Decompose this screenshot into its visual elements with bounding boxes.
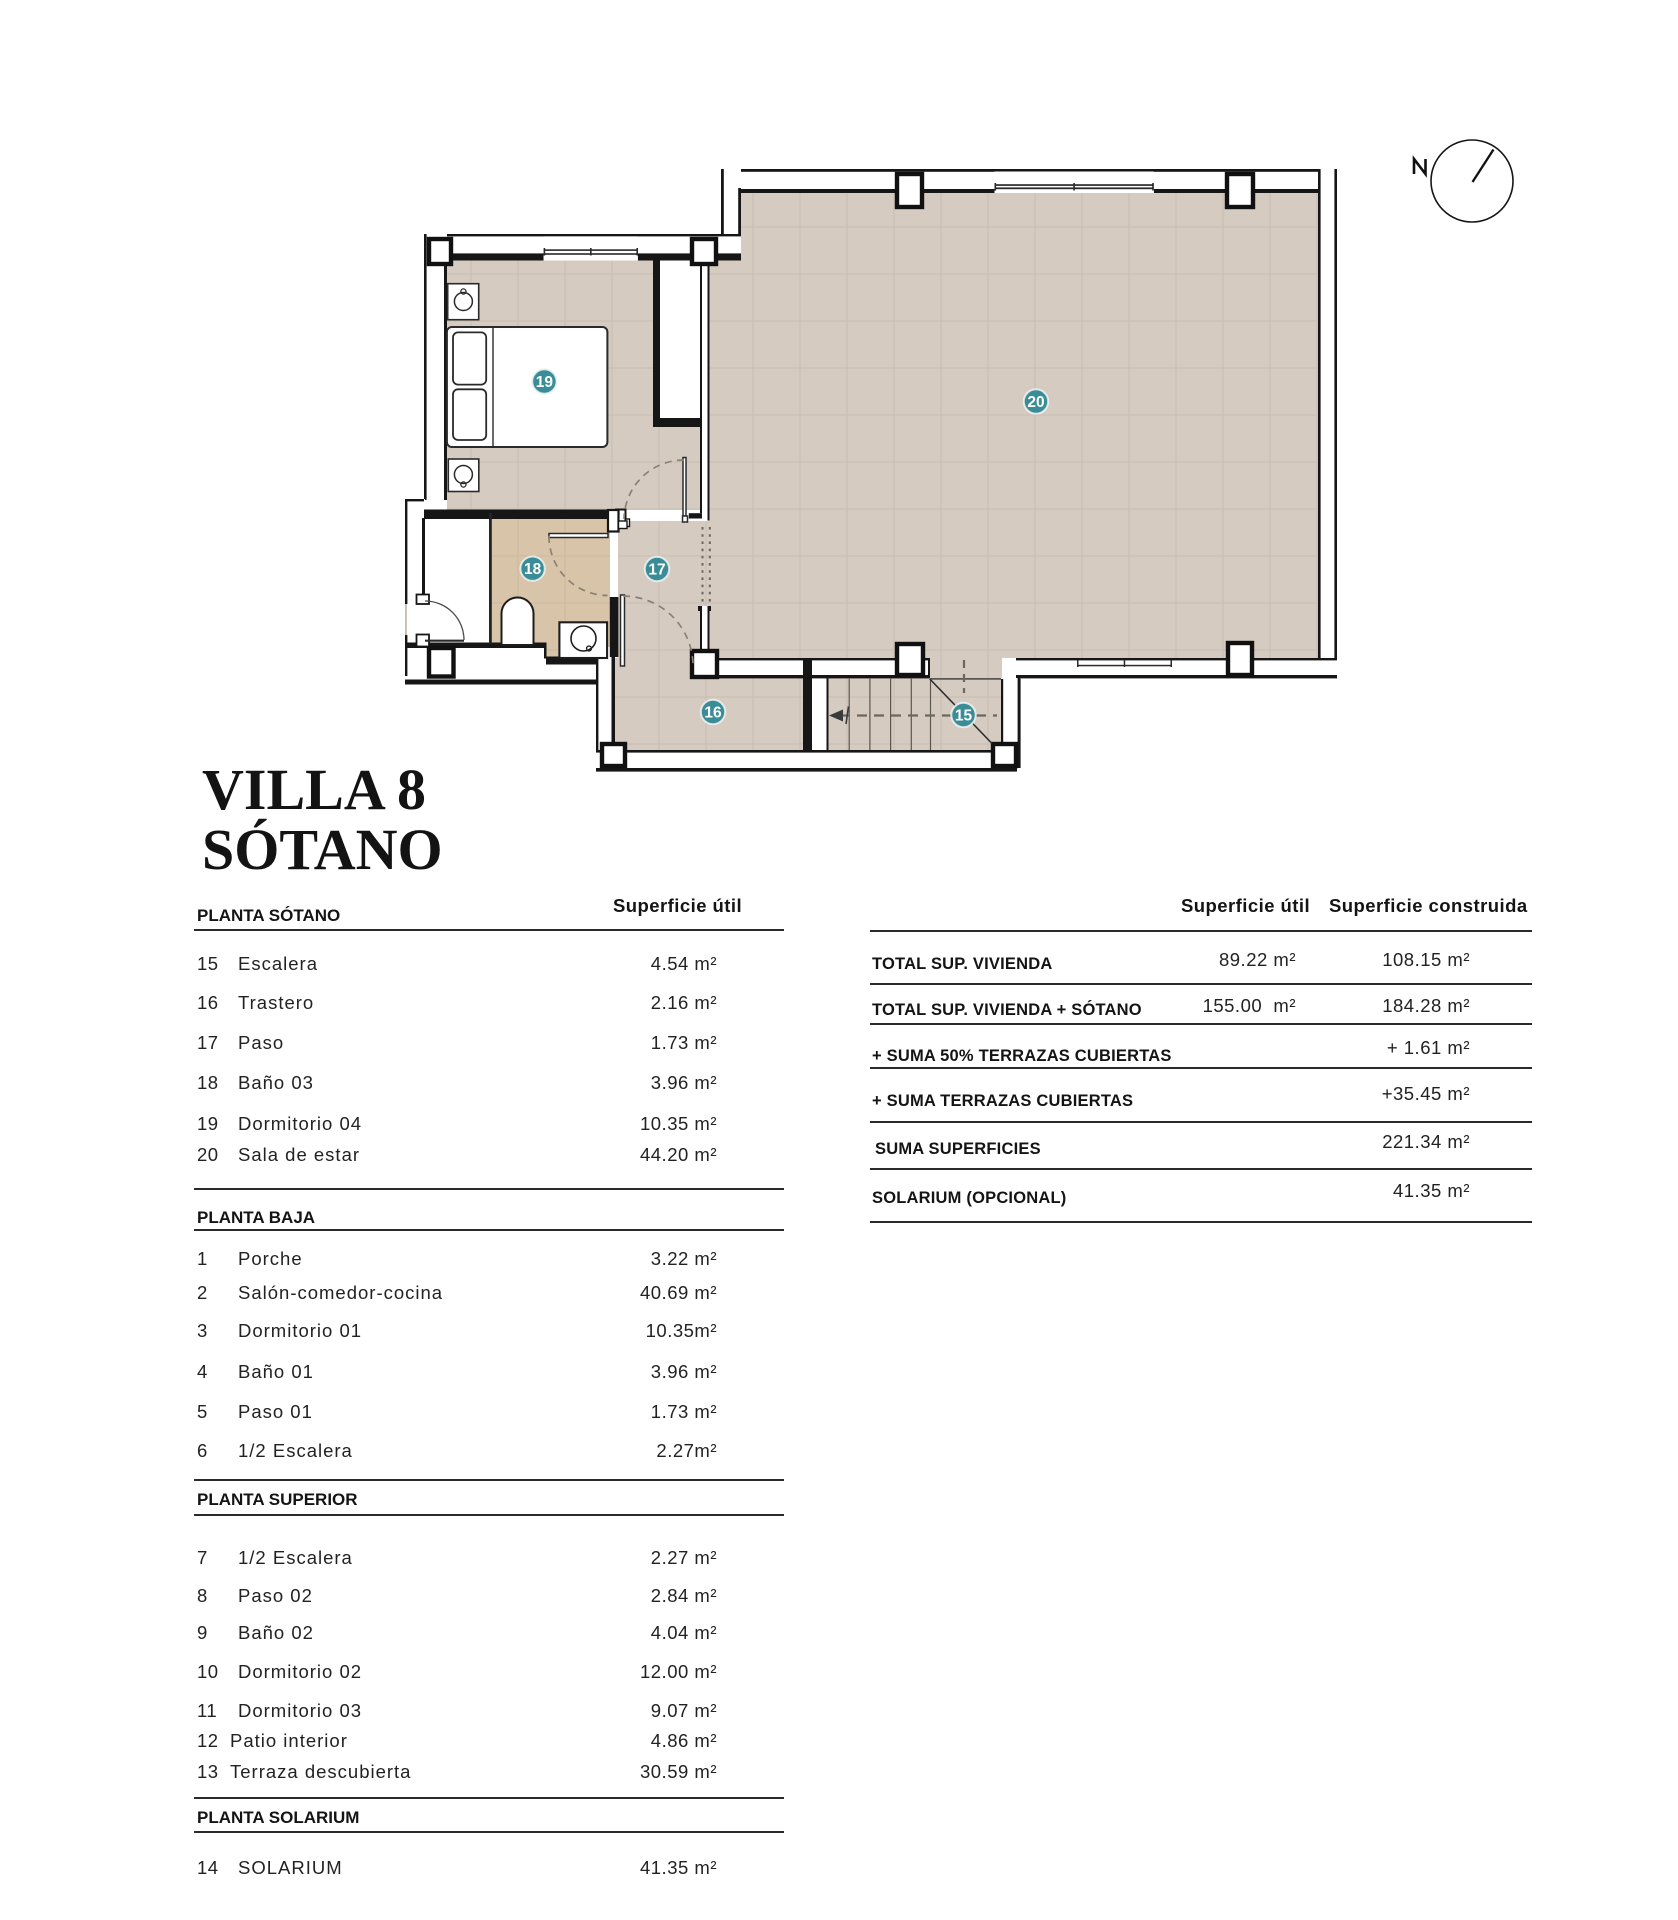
svg-text:17: 17: [648, 562, 665, 579]
svg-text:15: 15: [955, 708, 973, 725]
svg-text:20: 20: [1027, 394, 1044, 411]
svg-text:19: 19: [536, 374, 554, 391]
svg-text:16: 16: [704, 705, 722, 722]
svg-text:18: 18: [524, 561, 542, 578]
